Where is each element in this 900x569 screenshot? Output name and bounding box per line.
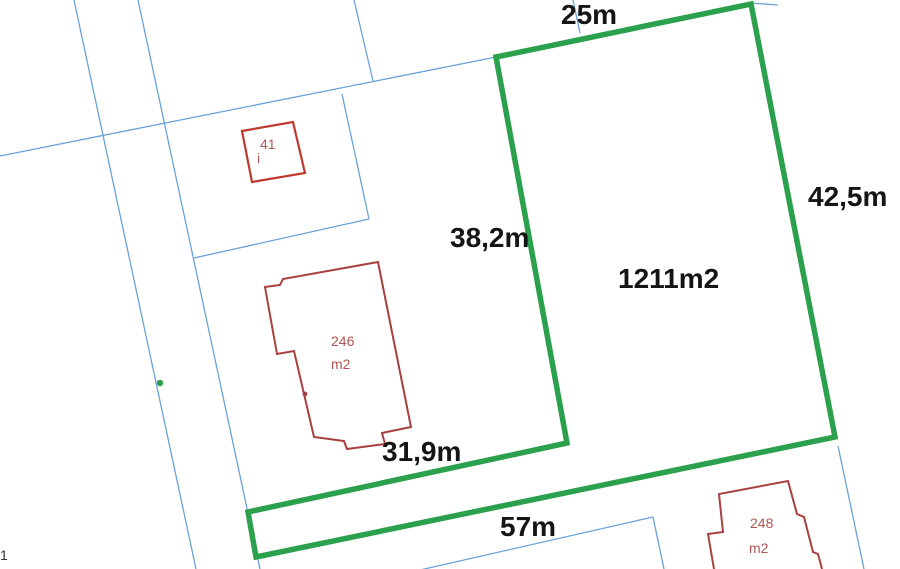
boundary-line-north-stub [354, 0, 373, 81]
boundary-line-west-2 [138, 0, 260, 569]
highlighted-parcel-outline [248, 4, 835, 557]
survey-point-marker [157, 380, 163, 386]
map-canvas[interactable]: 25m 42,5m 38,2m 1211m2 31,9m 57m 41 i 24… [0, 0, 900, 569]
parcel-area-label: 1211m2 [618, 265, 719, 293]
building-246-unit: m2 [331, 357, 350, 371]
building-41-outline [242, 122, 305, 182]
boundary-line-west-1 [74, 0, 196, 569]
boundary-line-upper-horizontal [0, 57, 496, 156]
building-246-entrance-mark [303, 392, 308, 397]
dimension-label-bottom-inner: 31,9m [382, 438, 461, 466]
building-246-number: 246 [331, 334, 354, 348]
building-41-note: i [257, 151, 260, 165]
boundary-line-center-vertical [342, 94, 369, 219]
building-41-number: 41 [260, 137, 276, 151]
dimension-label-left: 38,2m [450, 224, 529, 252]
boundary-line-bottom-vertical [653, 517, 664, 569]
boundary-line-topright-stub [751, 3, 778, 5]
building-248-number: 248 [750, 516, 773, 530]
building-248-unit: m2 [749, 541, 768, 555]
dimension-label-top: 25m [561, 1, 617, 29]
dimension-label-right: 42,5m [808, 183, 887, 211]
boundary-line-southeast [838, 446, 864, 569]
dimension-label-bottom-strip: 57m [500, 513, 556, 541]
boundary-line-center-horizontal [194, 219, 369, 258]
parcel-boundary-lines [0, 0, 864, 569]
cadastral-map-drawing [0, 0, 900, 569]
edge-parcel-number-mark: 1 [0, 548, 8, 562]
